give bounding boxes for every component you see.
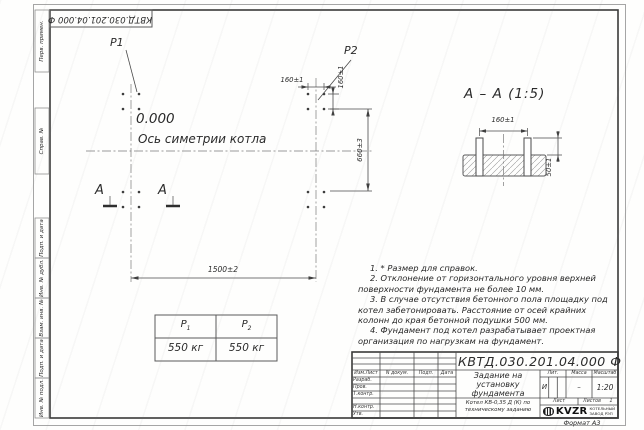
corner-stamp-number: КВТД.030.201.04.000 Ф: [50, 10, 152, 27]
scale-label: Масштаб: [592, 370, 618, 377]
sheets-value: 1: [604, 398, 618, 405]
col-header-doc: N докум.: [380, 370, 414, 377]
col-header-date: Дата: [438, 370, 456, 377]
cut-letter-right: A: [158, 183, 167, 198]
mass-value: –: [566, 383, 592, 391]
col-header-sign: Подп.: [414, 370, 438, 377]
drawing-title-line1: Задание на: [458, 371, 538, 380]
dim-bolt-spacing-v: 160±1: [336, 63, 346, 91]
kvzr-logo: KVZR КОТЕЛЬНЫЙ ЗАВОД РЭП: [541, 405, 617, 418]
section-title: А – А (1:5): [464, 86, 545, 102]
dim-plan-width: 1500±2: [200, 265, 246, 274]
anchor-bolt-right: [524, 138, 531, 176]
margin-label-first-use: Перв. примен.: [37, 11, 47, 71]
dim-plan-height: 660±3: [355, 135, 365, 165]
boiler-axis-caption: Ось симетрии котла: [138, 132, 266, 146]
lit-label: Лит.: [540, 370, 566, 377]
level-mark: 0.000: [136, 111, 175, 127]
margin-label-ref-no: Справ. №: [37, 111, 47, 171]
col-header-izm: Изм.Лист: [352, 370, 380, 377]
format-note: Формат А3: [552, 419, 612, 427]
dim-section-span: 160±1: [489, 116, 517, 124]
row-developed: Разраб.: [353, 377, 372, 384]
load-p1-label: P1: [110, 36, 124, 49]
load-p2-label: P2: [344, 44, 358, 57]
title-block-doc-number: КВТД.030.201.04.000 Ф: [458, 354, 616, 369]
note-3: 3. В случае отсутствия бетонного пола пл…: [358, 294, 614, 325]
row-checked: Пров.: [353, 384, 367, 391]
loads-table-header-p2: P2: [216, 319, 277, 332]
note-4: 4. Фундамент под котел разрабатывает про…: [358, 325, 614, 346]
dim-bolt-spacing-h: 160±1: [278, 76, 306, 84]
product-name: Котел КВ-0,35 Д (К) по техническому зада…: [458, 400, 538, 413]
drawing-title-line2: установку: [458, 380, 538, 389]
row-ncontrol: Н.контр.: [353, 404, 374, 411]
anchor-bolt-left: [476, 138, 483, 176]
loads-table-value-p1: 550 кг: [155, 342, 216, 354]
cut-letter-left: A: [95, 183, 104, 198]
row-approved: Утв.: [353, 411, 363, 418]
concrete-pad: [463, 155, 546, 176]
p2-sub: 2: [248, 325, 252, 332]
sheets-label: Листов: [578, 398, 606, 405]
product-name-line2: техническому заданию: [458, 407, 538, 414]
kvzr-logo-text: KVZR: [556, 406, 588, 417]
row-tcontrol: Т.контр.: [353, 391, 374, 398]
note-2: 2. Отклонение от горизонтального уровня …: [358, 273, 614, 294]
product-name-line1: Котел КВ-0,35 Д (К) по: [458, 400, 538, 407]
kvzr-emblem-icon: [543, 407, 554, 416]
kvzr-logo-caption: КОТЕЛЬНЫЙ ЗАВОД РЭП: [590, 407, 616, 415]
kvzr-caption-line2: ЗАВОД РЭП: [590, 412, 616, 416]
drawing-title-line3: фундамента: [458, 389, 538, 398]
sheet-label: Лист: [540, 398, 578, 405]
drawing-title: Задание на установку фундамента: [458, 371, 538, 398]
loads-table-value-p2: 550 кг: [216, 342, 277, 354]
loads-table-header-p1: P1: [155, 319, 216, 332]
lit-value: И: [540, 383, 549, 391]
margin-label-inv-orig: Инв. № подл.: [37, 370, 47, 426]
note-1: 1. * Размер для справок.: [358, 263, 614, 273]
mass-label: Масса: [566, 370, 592, 377]
scale-value: 1:20: [592, 383, 618, 392]
notes-block: 1. * Размер для справок. 2. Отклонение о…: [358, 263, 614, 346]
plan-view-linework: [86, 50, 372, 282]
dim-section-protrusion: 50±1: [544, 153, 554, 181]
p1-sub: 1: [187, 325, 191, 332]
drawing-sheet: КВТД.030.201.04.000 Ф Перв. примен. Спра…: [0, 0, 644, 430]
